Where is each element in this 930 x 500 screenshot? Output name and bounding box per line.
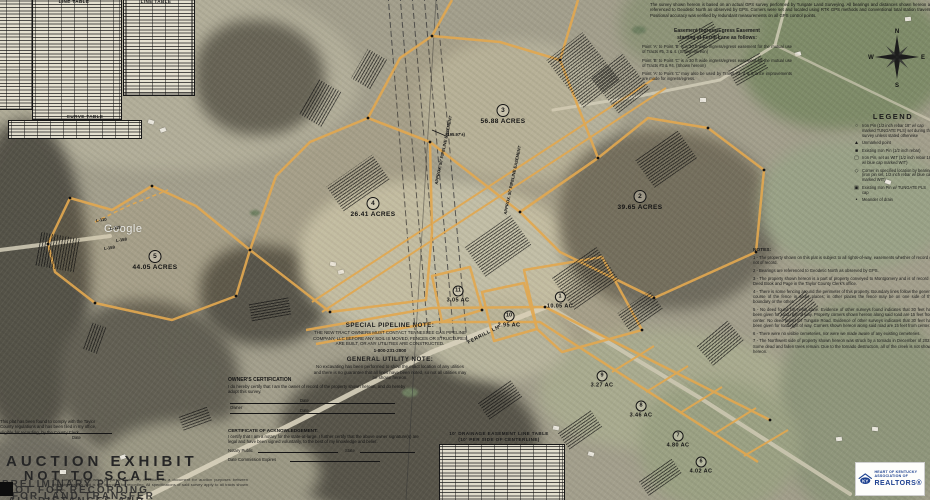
notary-line xyxy=(258,452,338,453)
legend-item-text: Existing Iron Pin (1/2 inch rebar) xyxy=(862,149,920,154)
clerk-date-label: Date xyxy=(72,435,81,440)
line-table-title-2: LINE TABLE xyxy=(128,0,184,4)
easement-paragraph: Point 'B' to Point 'C' is a 30 ft wide i… xyxy=(642,58,792,69)
utility-note-title: GENERAL UTILITY NOTE: xyxy=(312,356,468,363)
tract-label-1: 110.05 AC xyxy=(547,285,573,310)
tract-number-badge: 5 xyxy=(148,250,161,263)
commission-label: Date Commission Expires xyxy=(228,457,276,462)
legend-item-text: Iron Pin (1/2 inch rebar 18" w/ cap mark… xyxy=(862,124,930,139)
easement-paragraphs: Point 'A' to Point 'B' is a 30 ft wide i… xyxy=(642,44,792,82)
tract-label-8: 83.46 AC xyxy=(630,394,653,419)
tract-acreage: 44.05 ACRES xyxy=(133,264,178,271)
legend-symbol-icon: ▲ xyxy=(853,141,860,146)
tract-label-2: 239.65 ACRES xyxy=(618,185,663,211)
bearing-annotation-smudge xyxy=(34,232,79,272)
tract-label-10: 102.95 AC xyxy=(498,304,521,329)
tract-number-badge: 3 xyxy=(496,104,509,117)
tract-acreage: 56.88 ACRES xyxy=(481,118,526,125)
tract-number-badge: 4 xyxy=(366,197,379,210)
tract-number-badge: 10 xyxy=(504,311,515,322)
pipeline-note-body: THE NEW TRACT OWNERS MUST CONTACT TENNES… xyxy=(312,330,468,347)
legend-item-text: Corner in specified location by bearing … xyxy=(862,169,930,184)
tract-label-9: 93.27 AC xyxy=(591,364,614,389)
tract-acreage: 4.80 AC xyxy=(667,443,690,449)
compass-s-label: S xyxy=(895,83,899,88)
pipeline-note-phone: 1-800-231-2800 xyxy=(312,348,468,353)
note-item: 3 - The property shown hereon is a part … xyxy=(753,276,930,287)
note-item: 5 - No deed found for Ferrill Lane. Evid… xyxy=(753,307,930,328)
tract-number-badge: 6 xyxy=(696,457,707,468)
legend-item: ▣Existing Iron Pin w/ TUNGATE PLS cap xyxy=(853,186,930,196)
tract-number-badge: 9 xyxy=(597,371,608,382)
tract-label-5: 544.05 ACRES xyxy=(133,245,178,271)
curve-table-title: CURVE TABLE xyxy=(50,114,120,119)
tract-label-4: 426.41 ACRES xyxy=(351,192,396,218)
note-item: 2 - Bearings are referenced to Geodetic … xyxy=(753,268,930,273)
easement-paragraph: Point 'A' to Point 'B' is a 30 ft wide i… xyxy=(642,44,792,55)
fine-print-paragraph: This survey and plat were prepared, unde… xyxy=(52,478,248,500)
compass-w-label: W xyxy=(868,55,874,61)
tract-acreage: 4.02 AC xyxy=(690,469,713,475)
drainage-easement-table xyxy=(439,444,565,500)
legend-item: ▢Iron Pin, set as WIT (1/2 inch rebar 18… xyxy=(853,156,930,166)
tract-label-11: 113.05 AC xyxy=(447,279,470,304)
owner-signature-line-2 xyxy=(230,413,395,414)
line-table-right xyxy=(123,0,195,96)
special-pipeline-note: SPECIAL PIPELINE NOTE: THE NEW TRACT OWN… xyxy=(312,322,468,353)
pipeline-note-title: SPECIAL PIPELINE NOTE: xyxy=(312,322,468,329)
line-table-left xyxy=(0,0,34,110)
legend-item-text: Unmarked point xyxy=(862,141,891,146)
legend-item-text: Meander of drain xyxy=(862,198,893,203)
tract-number-badge: 11 xyxy=(453,286,464,297)
ky-abbr: KY xyxy=(862,478,868,483)
tract-number-badge: 2 xyxy=(633,190,646,203)
corner-marker xyxy=(0,482,13,496)
compass-rose: N E S W xyxy=(866,26,928,88)
line-table-center xyxy=(32,0,122,120)
easement-paragraph: Point 'A' to Point 'C' may also be used … xyxy=(642,71,792,82)
drainage-table-title-1: 10' DRAINAGE EASEMENT LINE TABLE xyxy=(435,431,563,436)
general-utility-note: GENERAL UTILITY NOTE: No excavating has … xyxy=(312,356,468,381)
owner-certification-body: I do hereby certify that I am the owner … xyxy=(228,384,408,395)
compass-n-label: N xyxy=(895,29,899,35)
legend-symbol-icon: • xyxy=(853,198,860,203)
owner-date-label-2: Date xyxy=(300,408,309,413)
legend-item: ◇Corner in specified location by bearing… xyxy=(853,169,930,184)
utility-note-body: No excavating has been performed to show… xyxy=(312,364,468,381)
legend-item: ▲Unmarked point xyxy=(853,141,930,146)
notes-items: 1 - The property shown on this plat is s… xyxy=(753,255,930,354)
tract-acreage: 3.27 AC xyxy=(591,383,614,389)
compass-cardinal-points xyxy=(875,35,919,79)
surveyor-note: The survey shown hereon is based on an a… xyxy=(650,2,930,18)
tract-number-badge: 7 xyxy=(673,431,684,442)
legend-symbol-icon: ○ xyxy=(853,124,860,139)
realtors-logo: KY HEART OF KENTUCKY ASSOCIATION OF REAL… xyxy=(855,462,925,496)
clerk-date-line xyxy=(0,433,112,434)
legend-item: ■Existing Iron Pin (1/2 inch rebar) xyxy=(853,149,930,154)
tract-number-badge: 8 xyxy=(636,401,647,412)
tract-acreage: 2.95 AC xyxy=(498,323,521,329)
ingress-egress-easement-note: Easement Ingress/Egress Easement startin… xyxy=(642,28,792,82)
notes-block: NOTES: 1 - The property shown on this pl… xyxy=(753,248,930,357)
owner-certification-title: OWNER'S CERTIFICATION xyxy=(228,377,291,383)
legend-symbol-icon: ▢ xyxy=(853,156,860,166)
line-table-title: LINE TABLE xyxy=(40,0,108,4)
commission-line xyxy=(290,461,380,462)
curve-table xyxy=(8,120,142,139)
owner-label: Owner xyxy=(230,405,242,410)
legend-symbol-icon: ■ xyxy=(853,149,860,154)
tract-acreage: 10.05 AC xyxy=(547,304,573,310)
owner-date-label-1: Date xyxy=(300,398,309,403)
legend-title: LEGEND xyxy=(853,112,930,121)
notes-title: NOTES: xyxy=(753,248,930,253)
auction-exhibit-plat-map: LINE TABLE LINE TABLE CURVE TABLE 10' DR… xyxy=(0,0,930,500)
compass-e-label: E xyxy=(921,55,925,61)
logo-realtors: REALTORS® xyxy=(874,480,922,487)
state-label: State xyxy=(345,448,355,453)
tract-label-3: 356.88 ACRES xyxy=(481,99,526,125)
legend-item-text: Iron Pin, set as WIT (1/2 inch rebar 18"… xyxy=(862,156,930,166)
legend-item-text: Existing Iron Pin w/ TUNGATE PLS cap xyxy=(862,186,930,196)
legend: LEGEND ○Iron Pin (1/2 inch rebar 18" w/ … xyxy=(853,112,930,206)
tract-acreage: 39.65 ACRES xyxy=(618,204,663,211)
legend-symbol-icon: ▣ xyxy=(853,186,860,196)
tract-label-7: 74.80 AC xyxy=(667,424,690,449)
easement-title-line2: starting at Ferrill Lane as follows: xyxy=(642,35,792,42)
legend-item: ○Iron Pin (1/2 inch rebar 18" w/ cap mar… xyxy=(853,124,930,139)
note-item: 6 - There were no visible cemeteries, no… xyxy=(753,331,930,336)
tract-number-badge: 1 xyxy=(554,292,565,303)
note-item: 1 - The property shown on this plat is s… xyxy=(753,255,930,266)
note-item: 7 - The Northwest side of property shown… xyxy=(753,338,930,354)
drainage-table-title-2: (10' PER SIDE OF CENTERLINE) xyxy=(435,437,563,442)
state-line xyxy=(360,452,415,453)
tract-acreage: 3.46 AC xyxy=(630,413,653,419)
legend-symbol-icon: ◇ xyxy=(853,169,860,184)
owner-signature-line-1 xyxy=(230,403,395,404)
tract-acreage: 26.41 ACRES xyxy=(351,211,396,218)
legend-items: ○Iron Pin (1/2 inch rebar 18" w/ cap mar… xyxy=(853,124,930,203)
logo-line2: ASSOCIATION OF xyxy=(874,475,922,479)
tract-label-6: 64.02 AC xyxy=(690,450,713,475)
note-item: 4 - There is some fencing around the per… xyxy=(753,289,930,305)
ky-house-icon: KY xyxy=(858,466,872,492)
legend-item: •Meander of drain xyxy=(853,198,930,203)
acknowledgement-body: I certify that I am a notary for the sta… xyxy=(228,434,428,445)
acknowledgement-title: CERTIFICATE OF ACKNOWLEDGEMENT: xyxy=(228,428,318,433)
tract-acreage: 3.05 AC xyxy=(447,298,470,304)
notary-label: Notary Public xyxy=(228,448,253,453)
